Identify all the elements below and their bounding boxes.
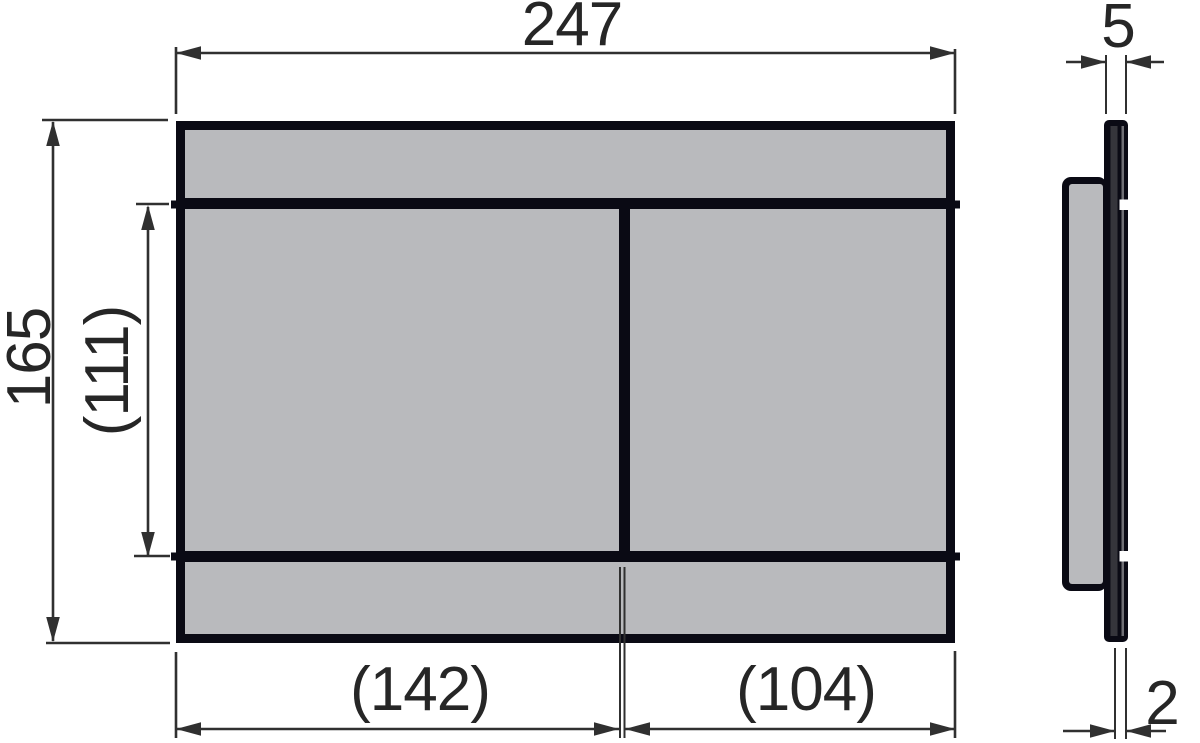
overall-height-label: 165 — [0, 308, 64, 408]
overall-width-label: 247 — [522, 0, 622, 59]
arrowhead-left — [176, 722, 201, 736]
plate-profile-highlight — [1111, 126, 1118, 636]
arrowhead-down — [141, 532, 155, 557]
dim-plate-thickness: 5 — [1066, 0, 1164, 114]
arrowhead-right — [930, 722, 955, 736]
dim-overall-width: 247 — [176, 0, 955, 114]
groove-nub — [171, 553, 177, 561]
arrowhead-center-right — [625, 722, 650, 736]
dimension-drawing-canvas: 247 165 (111) (142) (104) — [0, 0, 1200, 743]
plate-thickness-label: 5 — [1101, 0, 1134, 61]
arrowhead-up — [46, 121, 60, 146]
groove-nub — [954, 553, 960, 561]
groove-notch-top — [1120, 200, 1129, 211]
side-view — [1062, 120, 1129, 642]
arrowhead-right — [930, 46, 955, 60]
groove-nub — [171, 201, 177, 209]
plate-top-band — [185, 130, 946, 198]
left-button — [185, 209, 619, 551]
arrowhead-left — [1090, 724, 1115, 738]
arrowhead-left — [176, 46, 201, 60]
groove-nub — [954, 201, 960, 209]
dim-button-height: (111) — [73, 204, 170, 557]
plate-bottom-band — [185, 562, 946, 634]
arrowhead-down — [46, 617, 60, 642]
front-view — [171, 121, 960, 643]
edge-thickness-label: 2 — [1145, 669, 1178, 738]
dimension-drawing: 247 165 (111) (142) (104) — [0, 0, 1200, 743]
right-button-width-label: (104) — [736, 655, 876, 724]
rear-housing-fill — [1069, 184, 1103, 584]
button-height-label: (111) — [73, 306, 142, 437]
dim-edge-thickness: 2 — [1063, 648, 1179, 739]
groove-notch-bottom — [1120, 551, 1129, 562]
right-button — [630, 209, 946, 551]
arrowhead-up — [141, 205, 155, 230]
left-button-width-label: (142) — [350, 655, 490, 724]
arrowhead-center-left — [594, 722, 619, 736]
